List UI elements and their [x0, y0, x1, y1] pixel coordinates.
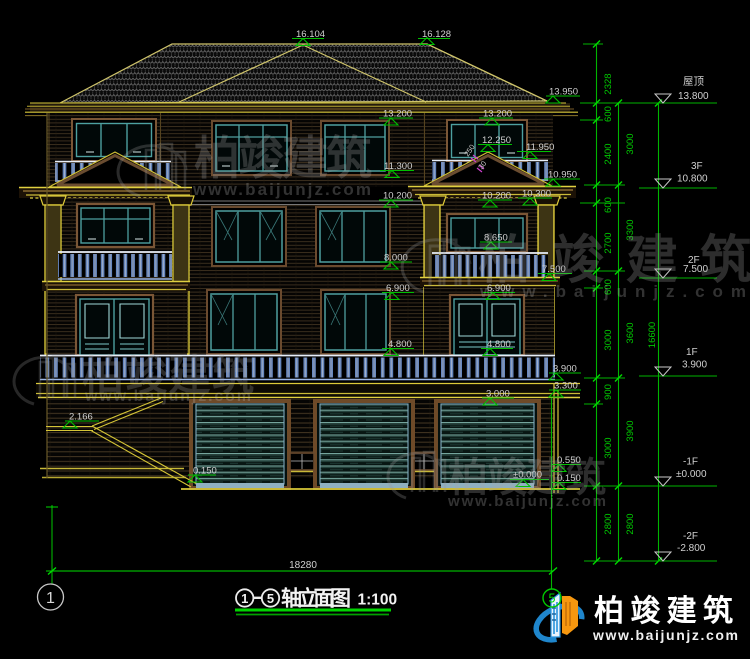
- svg-text:10.200: 10.200: [383, 191, 412, 202]
- svg-text:18280: 18280: [289, 560, 317, 571]
- svg-text:1: 1: [241, 591, 248, 606]
- svg-text:3900: 3900: [625, 420, 636, 441]
- svg-text:-2.800: -2.800: [677, 543, 706, 554]
- svg-text:2400: 2400: [603, 143, 614, 164]
- svg-text:0.150: 0.150: [193, 466, 217, 477]
- svg-text:10.300: 10.300: [522, 189, 551, 200]
- svg-text:10.200: 10.200: [482, 191, 511, 202]
- svg-text:13.200: 13.200: [483, 109, 512, 120]
- svg-text:16.104: 16.104: [296, 29, 325, 40]
- svg-text:2800: 2800: [625, 513, 636, 534]
- svg-text:900: 900: [603, 384, 614, 400]
- svg-text:-1F: -1F: [683, 457, 698, 468]
- svg-text:2800: 2800: [603, 513, 614, 534]
- svg-text:1: 1: [46, 590, 55, 607]
- svg-text:600: 600: [603, 197, 614, 213]
- svg-text:1:100: 1:100: [358, 592, 398, 609]
- svg-text:±0.000: ±0.000: [676, 469, 707, 480]
- svg-text:3.900: 3.900: [553, 364, 577, 375]
- svg-text:3F: 3F: [691, 161, 703, 172]
- svg-text:轴立面图: 轴立面图: [281, 587, 351, 611]
- svg-text:-2F: -2F: [683, 531, 698, 542]
- svg-text:2328: 2328: [603, 73, 614, 94]
- svg-text:11.300: 11.300: [384, 161, 412, 172]
- svg-text:13.800: 13.800: [678, 91, 709, 102]
- svg-text:1F: 1F: [686, 347, 698, 358]
- svg-text:5: 5: [267, 591, 274, 606]
- svg-text:3000: 3000: [625, 133, 636, 154]
- svg-text:13.950: 13.950: [549, 87, 578, 98]
- svg-text:3600: 3600: [625, 322, 636, 343]
- svg-text:16.128: 16.128: [422, 29, 451, 40]
- svg-text:3.900: 3.900: [682, 360, 707, 371]
- svg-text:11.950: 11.950: [526, 142, 554, 153]
- svg-text:4.800: 4.800: [487, 339, 511, 350]
- svg-text:13.200: 13.200: [383, 109, 412, 120]
- svg-text:4.800: 4.800: [388, 339, 412, 350]
- svg-text:6.900: 6.900: [386, 283, 410, 294]
- svg-text:2700: 2700: [603, 232, 614, 253]
- svg-text:3.300: 3.300: [554, 381, 578, 392]
- svg-text:3.000: 3.000: [486, 389, 510, 400]
- svg-text:16600: 16600: [647, 322, 658, 348]
- svg-text:12.250: 12.250: [482, 135, 511, 146]
- svg-text:柏竣建筑: 柏竣建筑: [194, 132, 372, 184]
- svg-text:3000: 3000: [603, 329, 614, 350]
- svg-text:2.166: 2.166: [69, 412, 93, 423]
- svg-text:5: 5: [549, 592, 556, 606]
- svg-text:10.950: 10.950: [548, 170, 577, 181]
- svg-text:屋顶: 屋顶: [683, 76, 704, 88]
- svg-text:10.800: 10.800: [677, 174, 708, 185]
- svg-text:600: 600: [603, 106, 614, 122]
